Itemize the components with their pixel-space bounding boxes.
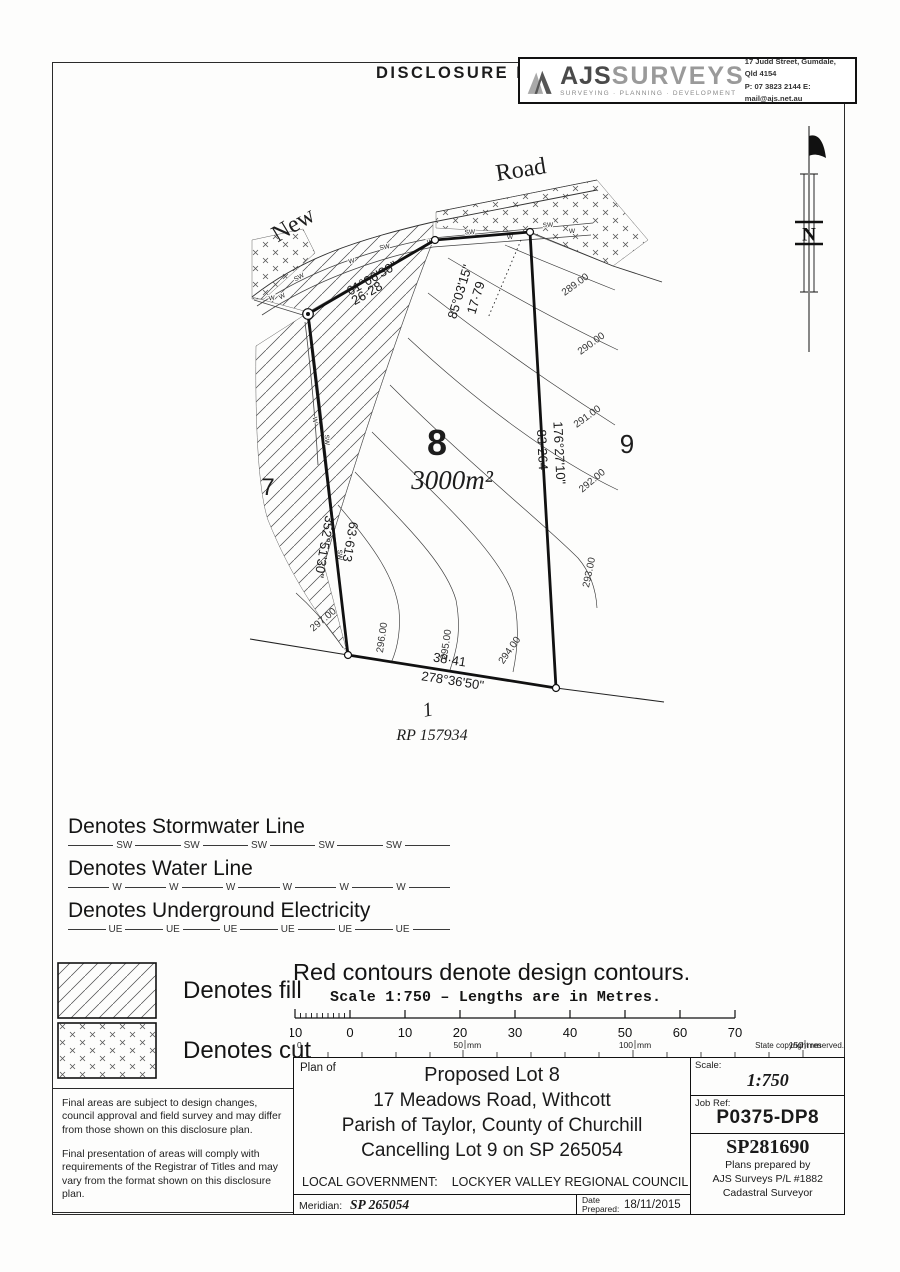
ue-abbr: UE	[220, 924, 240, 935]
title-block-main: Plan of Proposed Lot 8 17 Meadows Road, …	[294, 1058, 691, 1214]
local-government-label: LOCAL GOVERNMENT:	[302, 1175, 438, 1189]
disclaimer-para-1: Final areas are subject to design change…	[62, 1097, 285, 1137]
w-abbr: W	[393, 882, 408, 893]
plan-title-line1: Proposed Lot 8	[294, 1063, 690, 1088]
legend-item-stormwater: Denotes Stormwater Line SW SW SW SW SW	[68, 816, 452, 852]
contour-label: 290.00	[576, 330, 608, 357]
water-line-sample: W W W W W W	[68, 881, 450, 894]
mm-unit: mm	[637, 1040, 651, 1050]
meridian-row: Meridian: SP 265054 Date Prepared: 18/11…	[294, 1194, 690, 1215]
disclaimer-para-2: Final presentation of areas will comply …	[62, 1148, 285, 1201]
contour-label: 294.00	[497, 635, 524, 667]
legend-item-electricity: Denotes Underground Electricity UE UE UE…	[68, 900, 452, 936]
mm-ruler: 0 50 mm 100 mm 150 mm State copyright re…	[293, 1036, 845, 1058]
copyright-note: State copyright reserved.	[755, 1041, 844, 1050]
meridian-label: Meridian:	[299, 1200, 342, 1212]
ajs-name-light: SURVEYS	[612, 64, 745, 89]
prepared-by-line2: AJS Surveys P/L #1882	[691, 1173, 845, 1187]
fill-hatch-swatch	[57, 962, 157, 1019]
plan-title-line3: Parish of Taylor, County of Churchill	[294, 1113, 690, 1138]
sw-label: SW	[464, 228, 476, 236]
surveyor-logo-box: AJS SURVEYS SURVEYING · PLANNING · DEVEL…	[518, 57, 857, 104]
mm-tick: 0	[297, 1040, 302, 1050]
w-abbr: W	[166, 882, 181, 893]
sw-abbr: SW	[248, 840, 270, 851]
w-label: W	[569, 228, 576, 235]
rp-label: RP 157934	[395, 727, 467, 744]
legend-item-water: Denotes Water Line W W W W W W	[68, 858, 452, 894]
ajs-tagline: SURVEYING · PLANNING · DEVELOPMENT	[560, 90, 745, 97]
legend-label: Denotes Underground Electricity	[68, 900, 452, 922]
sw-abbr: SW	[113, 840, 135, 851]
sw-label: SW	[543, 222, 555, 230]
fill-label: Denotes fill	[183, 977, 302, 1005]
date-prepared-cell: Date Prepared: 18/11/2015	[576, 1195, 691, 1215]
mm-unit: mm	[467, 1040, 481, 1050]
contour-label: 296.00	[375, 621, 390, 653]
contour-label: 293.00	[581, 556, 598, 589]
local-government-value: LOCKYER VALLEY REGIONAL COUNCIL	[452, 1175, 689, 1189]
red-contours-note: Red contours denote design contours.	[293, 959, 690, 986]
plan-title-line4: Cancelling Lot 9 on SP 265054	[294, 1138, 690, 1163]
title-block: Plan of Proposed Lot 8 17 Meadows Road, …	[293, 1057, 845, 1215]
bearing-leader-dotted	[488, 240, 521, 318]
ue-abbr: UE	[393, 924, 413, 935]
ajs-phone-email: P: 07 3823 2144 E: mail@ajs.net.au	[745, 81, 849, 105]
plan-title-line2: 17 Meadows Road, Withcott	[294, 1088, 690, 1113]
ajs-name: AJS SURVEYS SURVEYING · PLANNING · DEVEL…	[560, 64, 745, 97]
sp-number: SP281690	[691, 1136, 845, 1159]
lot-number-bottom: 1	[421, 698, 435, 722]
job-ref-cell: Job Ref: P0375-DP8	[691, 1096, 845, 1134]
ajs-name-bold: AJS	[560, 64, 612, 89]
meridian-value: SP 265054	[350, 1197, 409, 1213]
sp-number-cell: SP281690 Plans prepared by AJS Surveys P…	[691, 1134, 845, 1213]
ajs-contact-block: 17 Judd Street, Gumdale, Qld 4154 P: 07 …	[745, 56, 849, 105]
w-abbr: W	[280, 882, 295, 893]
date-prepared-value: 18/11/2015	[624, 1199, 681, 1211]
north-arrow: N	[795, 126, 826, 352]
legend-label: Denotes Water Line	[68, 858, 452, 880]
local-government-row: LOCAL GOVERNMENT:LOCKYER VALLEY REGIONAL…	[302, 1175, 688, 1189]
plan-title-lines: Proposed Lot 8 17 Meadows Road, Withcott…	[294, 1063, 690, 1163]
ajs-address: 17 Judd Street, Gumdale, Qld 4154	[745, 56, 849, 80]
sw-abbr: SW	[383, 840, 405, 851]
mm-tick: 100	[619, 1040, 633, 1050]
scale-cell: Scale: 1:750	[691, 1058, 845, 1096]
fill-hatch-regions	[252, 222, 433, 652]
lot-number-right: 9	[620, 429, 634, 459]
title-block-side: Scale: 1:750 Job Ref: P0375-DP8 SP281690…	[691, 1058, 845, 1214]
north-arrow-label: N	[802, 225, 816, 246]
job-ref-value: P0375-DP8	[691, 1107, 845, 1129]
distance-right: 83·264	[534, 429, 551, 470]
bearing-right: 176°27'10"	[550, 421, 568, 485]
w-abbr: W	[223, 882, 238, 893]
w-abbr: W	[336, 882, 351, 893]
scale-note: Scale 1:750 – Lengths are in Metres.	[330, 989, 661, 1006]
legend-label: Denotes Stormwater Line	[68, 816, 452, 838]
disclaimer-box: Final areas are subject to design change…	[52, 1088, 294, 1213]
ue-abbr: UE	[278, 924, 298, 935]
ue-abbr: UE	[335, 924, 355, 935]
legend-item-fill: Denotes fill	[57, 962, 302, 1019]
stormwater-line-sample: SW SW SW SW SW	[68, 839, 450, 852]
prepared-by-line3: Cadastral Surveyor	[691, 1187, 845, 1201]
cut-hatch-swatch	[57, 1022, 157, 1079]
scale-value: 1:750	[691, 1070, 845, 1091]
utility-legend: Denotes Stormwater Line SW SW SW SW SW D…	[68, 816, 452, 942]
w-abbr: W	[109, 882, 124, 893]
date-prepared-label: Date Prepared:	[582, 1196, 619, 1215]
lot-number-left: 7	[261, 474, 274, 501]
ajs-logo-icon	[526, 65, 555, 97]
electricity-line-sample: UE UE UE UE UE UE	[68, 923, 450, 936]
lot-number-main: 8	[427, 422, 447, 463]
ue-abbr: UE	[163, 924, 183, 935]
road-name-road: Road	[494, 153, 548, 187]
prepared-by-line1: Plans prepared by	[691, 1159, 845, 1173]
contour-label: 289.00	[560, 271, 592, 298]
distance-left: 63·613	[340, 521, 362, 563]
mm-tick: 50	[454, 1040, 464, 1050]
survey-plan-drawing: SW SW SW SW SW SW W W W W W W W N	[0, 0, 900, 790]
lot-area: 3000m²	[410, 465, 493, 495]
ue-abbr: UE	[106, 924, 126, 935]
sw-abbr: SW	[181, 840, 203, 851]
sw-abbr: SW	[315, 840, 337, 851]
legend-item-cut: Denotes cut	[57, 1022, 311, 1079]
disclosure-plan-page: SW SW SW SW SW SW W W W W W W W N	[0, 0, 900, 1272]
